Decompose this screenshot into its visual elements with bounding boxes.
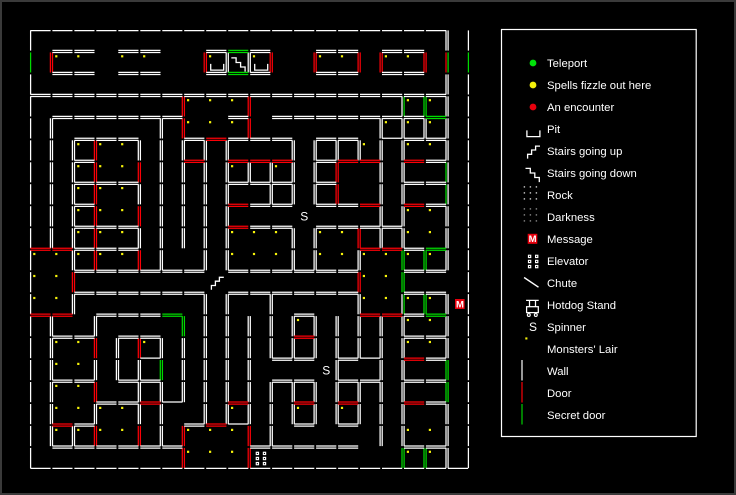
svg-text:Chute: Chute	[547, 278, 577, 290]
svg-text:Hotdog Stand: Hotdog Stand	[547, 300, 616, 312]
svg-text:Monsters' Lair: Monsters' Lair	[547, 344, 618, 356]
svg-text:Stairs going down: Stairs going down	[547, 168, 637, 180]
svg-text:Door: Door	[547, 388, 572, 400]
svg-text:Stairs going up: Stairs going up	[547, 146, 622, 158]
svg-text:Teleport: Teleport	[547, 58, 588, 70]
svg-text:M: M	[456, 299, 464, 310]
svg-text:Message: Message	[547, 234, 593, 246]
svg-text:S: S	[529, 320, 537, 334]
svg-text:Wall: Wall	[547, 366, 569, 378]
svg-text:Darkness: Darkness	[547, 212, 595, 224]
svg-text:Rock: Rock	[547, 190, 573, 202]
svg-text:Pit: Pit	[547, 124, 561, 136]
svg-text:Spinner: Spinner	[547, 322, 586, 334]
svg-text:An encounter: An encounter	[547, 102, 614, 114]
svg-text:M: M	[529, 234, 537, 245]
svg-text:Elevator: Elevator	[547, 256, 589, 268]
svg-text:Secret door: Secret door	[547, 410, 606, 422]
svg-text:S: S	[300, 210, 308, 224]
svg-text:S: S	[322, 363, 330, 377]
svg-text:Spells fizzle out here: Spells fizzle out here	[547, 80, 651, 92]
